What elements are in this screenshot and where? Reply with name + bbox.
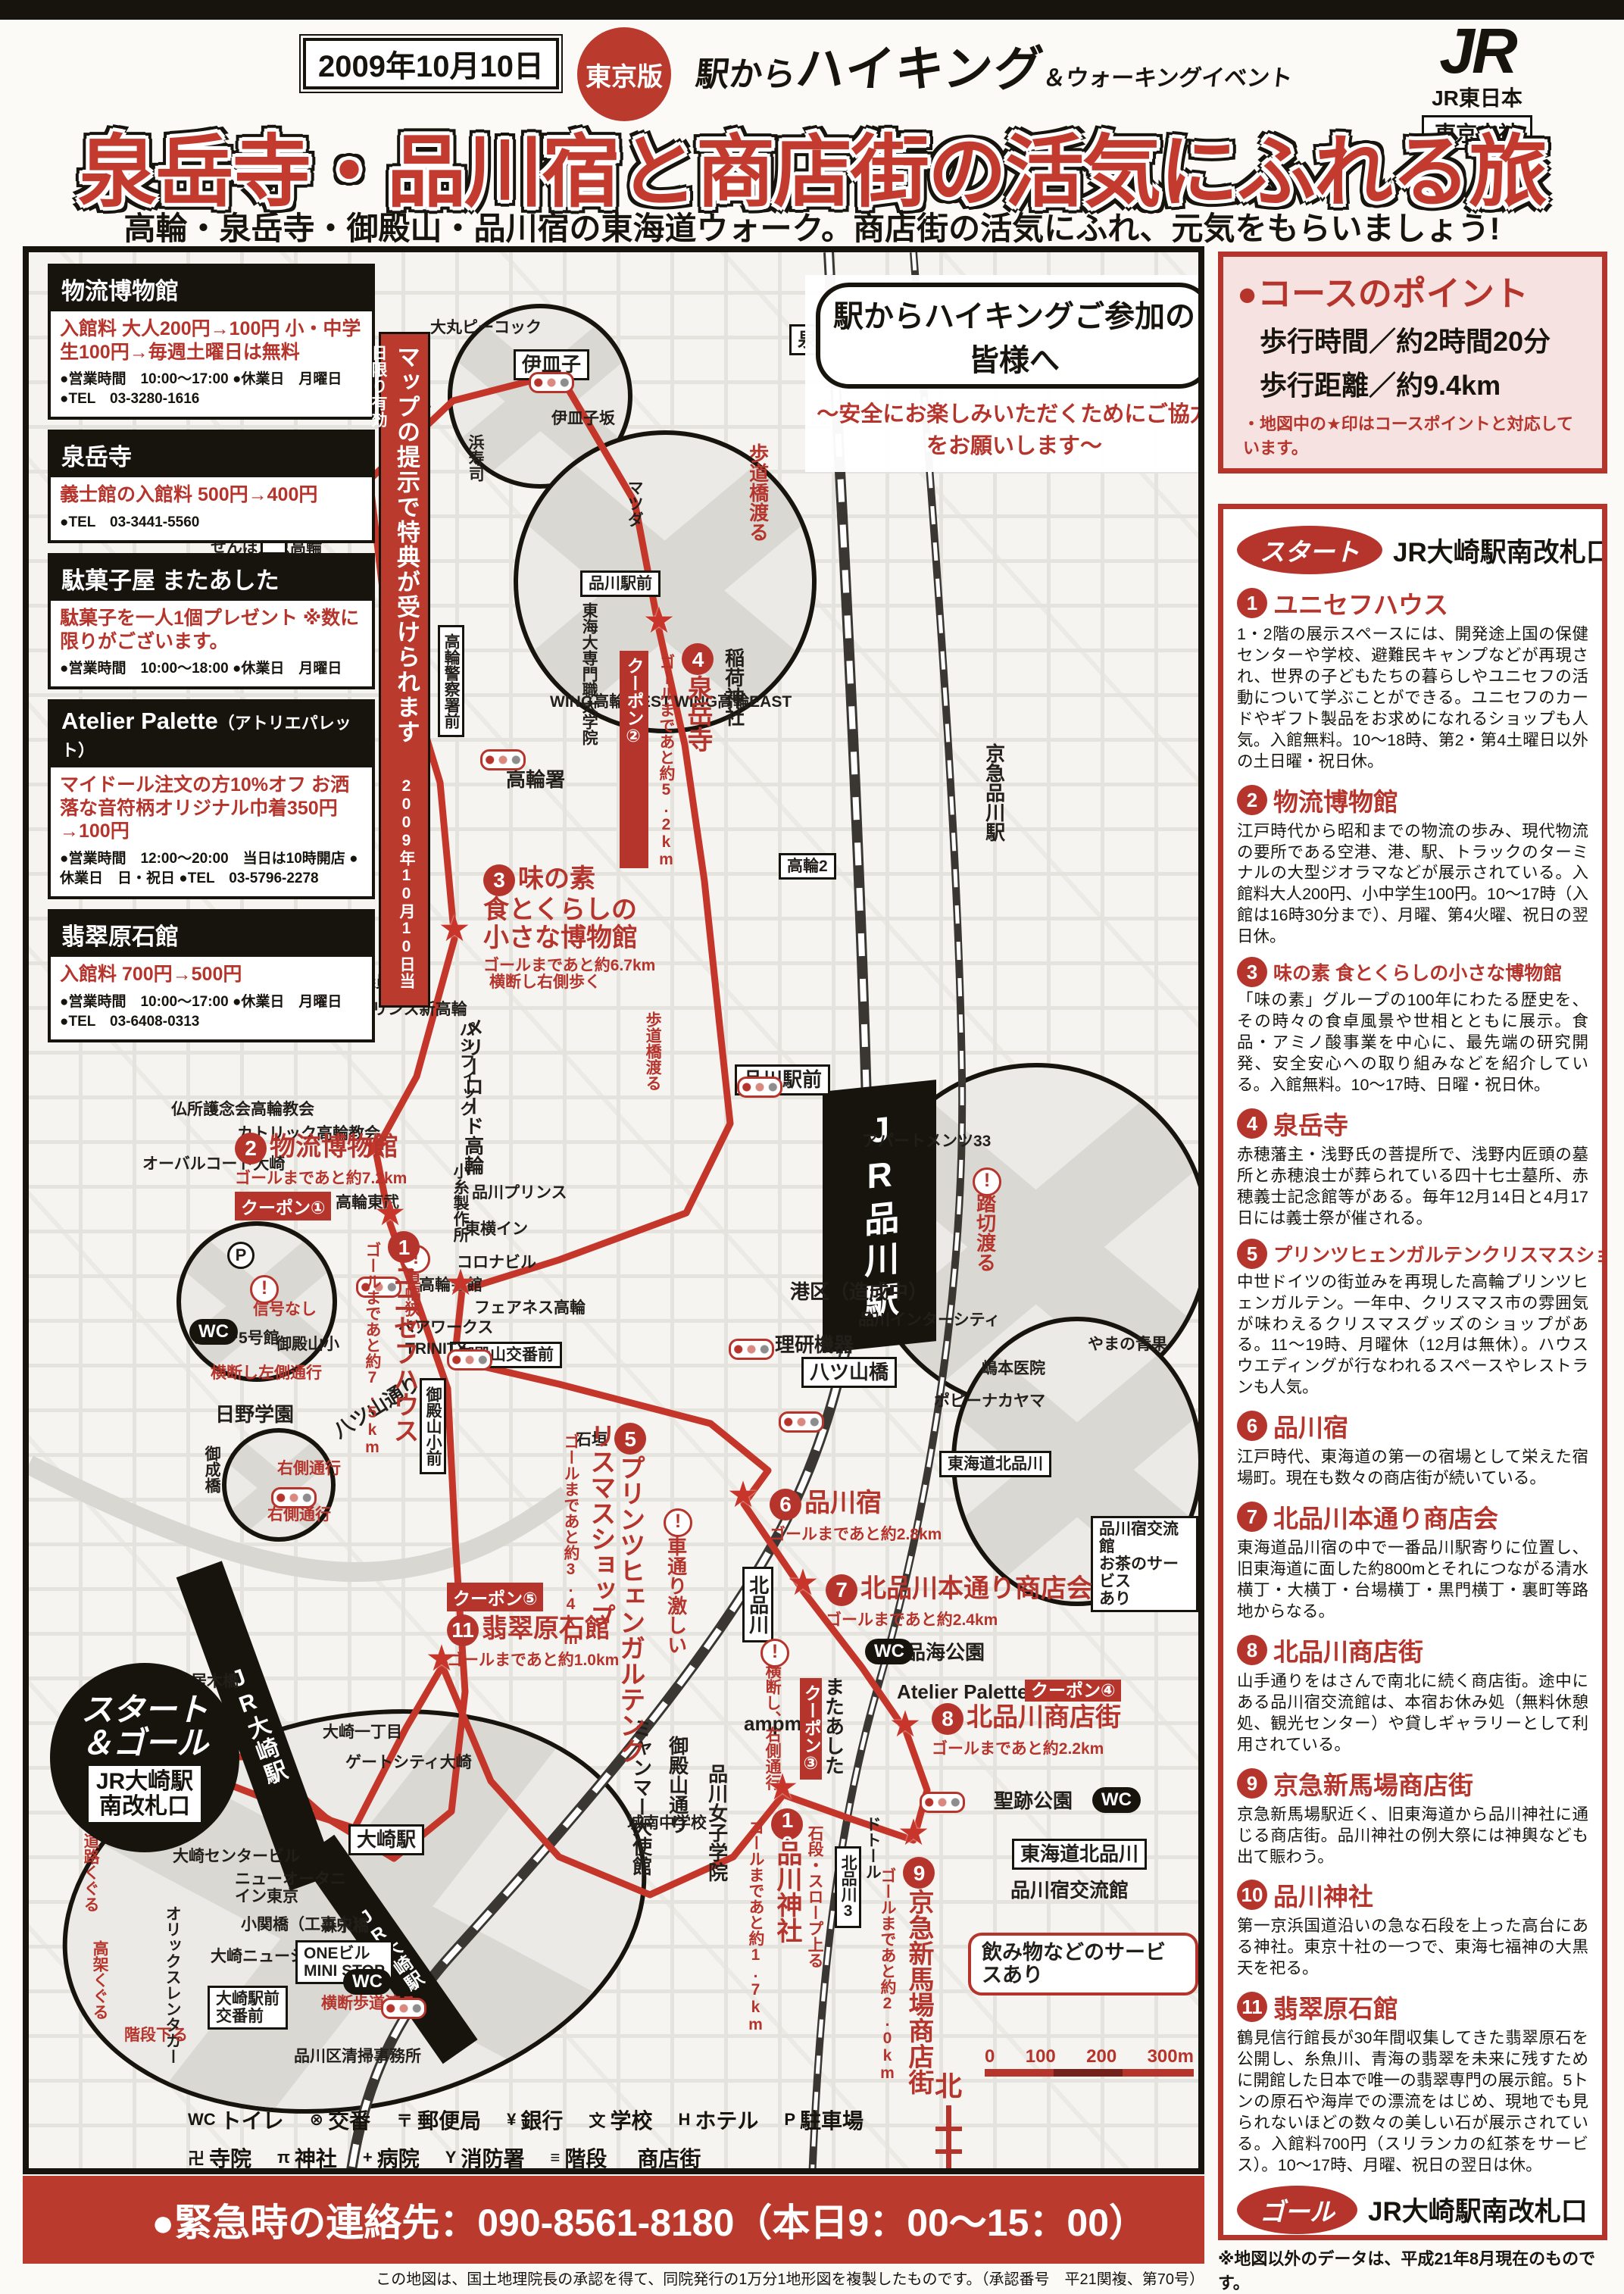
map-label: 右側通行 [277, 1460, 341, 1477]
distance-to-goal: ゴールまであと約2.8km [770, 1522, 942, 1545]
course-point-number: 10 [1237, 1880, 1267, 1910]
legend-item: ¥銀行 [507, 2105, 563, 2135]
legend-label: 階段 [564, 2142, 607, 2173]
info-box-body: 義士館の入館料 500円→400円 ●TEL 03-3441-5560 [51, 477, 372, 540]
map-label: 品海公園 [906, 1642, 985, 1664]
legend-item: WCトイレ [188, 2105, 284, 2135]
map-label: 北品川 [742, 1567, 773, 1642]
map-label [729, 1339, 774, 1360]
map-label: 港区（造成中） [790, 1281, 928, 1303]
course-point-entry: 2物流博物館 江戸時代から昭和までの物流の歩み、現代物流の要所である空港、港、駅… [1237, 782, 1588, 949]
course-point-name: プリンツヒェンガルテンクリスマスショップ [1273, 1240, 1607, 1267]
course-point-title: 北品川商店街 [967, 1703, 1121, 1732]
map-label: 石段・スロープ上る [806, 1825, 823, 1968]
legend-item: Hホテル [678, 2105, 758, 2135]
info-box: 物流博物館 入館料 大人200円→100円 小・中学生100円→毎週土曜日は無料… [48, 264, 375, 420]
course-point-label: 4泉岳寺 ゴールまであと約5.2km クーポン② [620, 643, 717, 868]
legend-item: 商店街 [632, 2142, 701, 2173]
course-point-number: 3 [483, 864, 515, 896]
legend-label: 商店街 [637, 2142, 701, 2173]
course-point-number: 5 [1237, 1239, 1267, 1269]
course-point-heading: 10品川神社 [771, 1808, 806, 2033]
north-label: 北 [935, 2064, 962, 2104]
course-point-number: 2 [235, 1133, 267, 1164]
course-point-name: 品川神社 [1273, 1877, 1373, 1913]
info-box: 泉岳寺 義士館の入館料 500円→400円 ●TEL 03-3441-5560 [48, 430, 375, 543]
course-points-title: ●コースのポイント [1237, 266, 1588, 315]
course-point-entry: 5プリンツヒェンガルテンクリスマスショップ 中世ドイツの街並みを再現した高輪プリ… [1237, 1239, 1588, 1399]
map-legend: WCトイレ⊗交番〒郵便局¥銀行文学校HホテルP駐車場 卍寺院π神社+病院Y消防署… [188, 2105, 1195, 2174]
course-star-marker: ★ [726, 1474, 759, 1516]
course-points-box: ●コースのポイント 歩行時間／約2時間20分歩行距離／約9.4km ・地図中の★… [1218, 252, 1607, 473]
legend-row1: WCトイレ⊗交番〒郵便局¥銀行文学校HホテルP駐車場 [188, 2105, 1195, 2135]
legend-icon: 卍 [188, 2146, 205, 2170]
facility-details: ●営業時間 10:00〜18:00 ●休業日 月曜日 [60, 659, 363, 679]
legend-label: 寺院 [209, 2142, 251, 2173]
course-point-name: 泉岳寺 [1273, 1105, 1348, 1142]
course-point-heading: 3味の素 食とくらしの 小さな博物館 [483, 864, 638, 952]
course-point-description: 京急新馬場駅近く、旧東海道から品川神社に通じる商店街。品川神社の例大祭には神輿な… [1237, 1805, 1588, 1868]
course-point-number: 7 [1237, 1502, 1267, 1532]
map-label: 東海道北品川 [939, 1451, 1051, 1477]
course-point-number: 11 [447, 1614, 479, 1646]
legend-label: 郵便局 [417, 2105, 481, 2135]
facility-details: ●営業時間 10:00〜17:00 ●休業日 月曜日 ●TEL 03-3280-… [60, 370, 363, 409]
map-label: 横断し右側歩く [489, 974, 601, 991]
course-point-name: 品川宿 [1273, 1408, 1348, 1444]
course-point-entry: 3味の素 食とくらしの小さな博物館 「味の素」グループの100年にわたる歴史を、… [1237, 957, 1588, 1096]
course-point-description: 第一京浜国道沿いの急な石段を上った高台にある神社。東京十社の一つで、東海七福神の… [1237, 1916, 1588, 1980]
course-point-label: 1ユニセフハウス ゴールまであと約7.5km [361, 1231, 423, 1456]
discount-highlight: 義士館の入館料 500円→400円 [60, 483, 363, 507]
course-point-description: 東海道品川宿の中で一番品川駅寄りに位置し、旧東海道に面した約800mとそれにつな… [1237, 1538, 1588, 1623]
map-label: 東海大専門職大学院 [580, 602, 598, 745]
map-label: 品川区清掃事務所 [294, 2048, 421, 2065]
course-point-number: 7 [826, 1574, 857, 1606]
goal-row: ゴール JR大崎駅南改札口 [1237, 2186, 1588, 2234]
legend-row2: 卍寺院π神社+病院Y消防署≡階段商店街 [188, 2142, 1195, 2173]
map-label: 歩道橋渡る [747, 443, 769, 542]
legend-icon: 文 [589, 2108, 605, 2132]
map-label: 大丸ピーコック [430, 319, 542, 336]
course-point-title: 翡翠原石館 [482, 1614, 611, 1643]
course-point-entry: 7北品川本通り商店会 東海道品川宿の中で一番品川駅寄りに位置し、旧東海道に面した… [1237, 1499, 1588, 1623]
legend-item: Y消防署 [445, 2142, 525, 2173]
map-label: 御殿山小前 [420, 1378, 446, 1474]
info-box-title: 駄菓子屋 またあした [51, 556, 372, 601]
notice-title: 駅からハイキングご参加の皆様へ [816, 283, 1204, 389]
map-label: WC [1092, 1787, 1141, 1813]
start-goal-bubble: スタート ＆ゴール JR大崎駅南改札口 [50, 1663, 239, 1852]
legend-label: 駐車場 [800, 2105, 864, 2135]
course-point-number: 6 [1237, 1411, 1267, 1441]
course-point-number: 8 [932, 1703, 963, 1735]
map-label [381, 1998, 426, 2019]
map-label: やまの青果 [1088, 1336, 1167, 1353]
course-star-marker: ★ [642, 599, 675, 642]
course-points-list: 1ユニセフハウス 1・2階の展示スペースには、開発途上国の保健センターや学校、避… [1237, 585, 1588, 2177]
emergency-contact: ●緊急時の連絡先：090-8561-8180（本日9：00〜15：00） [151, 2192, 1147, 2247]
map-label: ! [973, 1167, 1001, 1196]
course-point-name: 北品川商店街 [1273, 1632, 1423, 1668]
course-point-heading: 11翡翠原石館 [447, 1614, 611, 1646]
info-box-body: 入館料 700円→500円 ●営業時間 10:00〜17:00 ●休業日 月曜日… [51, 957, 372, 1039]
distance-to-goal: ゴールまであと約1.0km [447, 1648, 619, 1670]
legend-icon: ≡ [550, 2148, 560, 2167]
course-point-description: 中世ドイツの街並みを再現した高輪プリンツヒェンガルテン。一年中、クリスマス市の雰… [1237, 1272, 1588, 1399]
map-label: 品川女子学院 [706, 1764, 728, 1882]
map-label: 東海道北品川 [1012, 1839, 1147, 1870]
info-box: 駄菓子屋 またあした 駄菓子を一人1個プレゼント ※数に限りがございます。 ●営… [48, 553, 375, 689]
map-label: 飲み物などのサービスあり [968, 1933, 1198, 1996]
facility-details: ●TEL 03-3441-5560 [60, 513, 363, 533]
map-label: Atelier Palette [897, 1681, 1028, 1703]
event-logo-suffix: ＆ウォーキングイベント [1042, 66, 1294, 91]
facility-details: ●営業時間 12:00〜20:00 当日は10時開店 ●休業日 日・祝日 ●TE… [60, 849, 363, 889]
map-label [920, 1792, 965, 1813]
course-point-label: 11翡翠原石館 ゴールまであと約1.0km クーポン⑤ [447, 1583, 619, 1670]
scale-tick: 0 [985, 2046, 995, 2067]
legend-label: 学校 [610, 2105, 652, 2135]
distance-to-goal: ゴールまであと約2.2km [932, 1736, 1104, 1759]
legend-icon: ¥ [507, 2110, 516, 2130]
map-label: 品川駅前 [580, 570, 661, 597]
map-label: マツダ [626, 480, 643, 527]
map-label [480, 749, 526, 770]
map-label: 高架くぐる [91, 1940, 108, 2020]
course-points-note: ・地図中の★印はコースポイントと対応しています。 [1243, 411, 1588, 459]
legend-icon: Y [445, 2148, 457, 2167]
course-point-heading: 4泉岳寺 [682, 643, 717, 868]
course-point-number: 8 [1237, 1635, 1267, 1665]
map-label: 車通り激しい [665, 1536, 687, 1655]
course-point-name: 味の素 食とくらしの小さな博物館 [1273, 958, 1562, 986]
course-star-marker: ★ [444, 1261, 476, 1304]
north-arrow [946, 2105, 951, 2174]
legend-icon: P [784, 2110, 795, 2130]
map-label: 仏所護念会高輪教会 [171, 1101, 314, 1118]
map-label: 高輪署 [506, 769, 565, 791]
course-description-panel: スタート JR大崎駅南改札口 1ユニセフハウス 1・2階の展示スペースには、開発… [1218, 504, 1607, 2240]
data-currency-note: ※地図以外のデータは、平成21年8月現在のものです。 [1218, 2246, 1607, 2294]
map-label: 歩道橋渡る [644, 1011, 661, 1091]
distance-to-goal: ゴールまであと約6.7km [483, 953, 655, 976]
course-point-number: 9 [1237, 1768, 1267, 1799]
course-point-title: 北品川本通り商店会 [860, 1574, 1092, 1603]
event-date: 2009年10月10日 [303, 38, 559, 89]
legend-item: π神社 [277, 2142, 337, 2173]
course-point-number: 1 [1237, 588, 1267, 618]
map-label: 大崎一丁目 [323, 1724, 402, 1741]
legend-item: +病院 [363, 2142, 420, 2173]
scale-tick: 100 [1026, 2046, 1056, 2067]
info-box-body: 入館料 大人200円→100円 小・中学生100円→毎週土曜日は無料 ●営業時間… [51, 311, 372, 417]
course-point-description: 江戸時代、東海道の第一の宿場として栄えた宿場町。現在も数々の商店街が続いている。 [1237, 1447, 1588, 1489]
distance-to-goal: ゴールまであと約2.0km [876, 1867, 898, 2095]
map-attribution: この地図は、国土地理院長の承認を得て、同院発行の1万分1地形図を複製したものです… [23, 2267, 1204, 2289]
course-point-description: 江戸時代から昭和までの物流の歩み、現代物流の要所である空港、港、駅、トラックのタ… [1237, 821, 1588, 949]
map-scale-bar: 0100200300m [985, 2046, 1194, 2077]
course-point-title: 泉岳寺 [683, 675, 712, 752]
map-label [779, 1411, 824, 1433]
course-point-title: 物流博物館 [270, 1133, 398, 1161]
map-label: 御成橋 [203, 1445, 220, 1493]
coupon-badge: クーポン⑤ [447, 1583, 543, 1611]
course-point-entry: 4泉岳寺 赤穂藩主・浅野氏の菩提所で、浅野内匠頭の墓所と赤穂浪士が葬られている四… [1237, 1105, 1588, 1230]
course-point-entry: 8北品川商店街 山手通りをはさんで南北に続く商店街。途中にある品川宿交流館は、本… [1237, 1632, 1588, 1756]
course-point-label: 2物流博物館 ゴールまであと約7.2km クーポン① [235, 1133, 407, 1220]
course-star-marker: ★ [766, 1766, 798, 1808]
legend-label: 神社 [295, 2142, 337, 2173]
map-label: 御殿山小 [276, 1336, 339, 1353]
map-label: 高輪警察署前 [438, 625, 464, 737]
legend-item: P駐車場 [784, 2105, 864, 2135]
course-point-title: 品川神社 [773, 1840, 801, 1943]
scale-bar [985, 2069, 1194, 2077]
discount-highlight: マイドール注文の方10%オフ お洒落な音符柄オリジナル巾着350円→100円 [60, 774, 363, 843]
emergency-bar: ●緊急時の連絡先：090-8561-8180（本日9：00〜15：00） [23, 2176, 1204, 2264]
legend-icon: H [678, 2110, 690, 2130]
map-label: 森永橋 [321, 1917, 369, 1935]
legend-item: ⊗交番 [310, 2105, 370, 2135]
course-point-name: 京急新馬場商店街 [1273, 1765, 1473, 1802]
legend-icon: ⊗ [310, 2110, 323, 2130]
legend-item: ≡階段 [550, 2142, 607, 2173]
map-label [447, 1349, 492, 1370]
coupon-badge: クーポン① [235, 1192, 331, 1220]
map-label: 大崎駅 [348, 1824, 424, 1855]
course-point-label: 9京急新馬場商店街 ゴールまであと約2.0km [876, 1857, 938, 2095]
course-point-title: 京急新馬場商店街 [904, 1889, 933, 2095]
distance-to-goal: ゴールまであと約5.2km [654, 654, 677, 868]
map-label: 階段下る [124, 2027, 188, 2044]
course-star-marker: ★ [889, 1703, 921, 1746]
map-label: クーポン④ [1025, 1680, 1121, 1702]
map-label: またあした [823, 1677, 845, 1775]
course-point-name: 翡翠原石館 [1273, 1989, 1398, 2025]
map-label: 日野学園 [215, 1404, 294, 1426]
map-label: ! [760, 1639, 789, 1667]
map-label: 高輪2 [779, 853, 836, 880]
map-label: 稲荷神社 [723, 648, 745, 727]
map-label: 大崎駅前 交番前 [208, 1986, 288, 2030]
map-label: 品川インターシティ [858, 1311, 1000, 1329]
map-label: ! [250, 1275, 279, 1304]
course-point-heading: 9京急新馬場商店街 [903, 1857, 938, 2095]
map-label: ! [664, 1508, 692, 1537]
course-point-entry: 9京急新馬場商店街 京急新馬場駅近く、旧東海道から品川神社に通じる商店街。品川神… [1237, 1765, 1588, 1868]
map-label: 伊皿子坂 [551, 410, 615, 427]
info-box-body: 駄菓子を一人1個プレゼント ※数に限りがございます。 ●営業時間 10:00〜1… [51, 601, 372, 686]
distance-to-goal: ゴールまであと約2.4km [826, 1608, 998, 1630]
event-logo: 駅からハイキング＆ウォーキングイベント [693, 30, 1298, 100]
start-row: スタート JR大崎駅南改札口 [1237, 526, 1588, 574]
map-label: 東横イン [464, 1220, 528, 1238]
course-point-label: 7北品川本通り商店会 ゴールまであと約2.4km [826, 1574, 1092, 1630]
map-label: WC [865, 1639, 913, 1664]
map-label: ポピーナカヤマ [934, 1392, 1045, 1410]
event-logo-main: ハイキング [794, 42, 1047, 96]
map-label: 踏切渡る [974, 1193, 996, 1272]
coupon-badge: クーポン② [620, 651, 648, 868]
course-point-number: 3 [1237, 957, 1267, 987]
discount-highlight: 入館料 700円→500円 [60, 963, 363, 986]
map-label: 右側通行 [267, 1506, 331, 1524]
course-point-entry: 6品川宿 江戸時代、東海道の第一の宿場として栄えた宿場町。現在も数々の商店街が続… [1237, 1408, 1588, 1489]
legend-label: トイレ [220, 2105, 284, 2135]
discount-highlight: 駄菓子を一人1個プレゼント ※数に限りがございます。 [60, 607, 363, 653]
facility-details: ●営業時間 10:00〜17:00 ●休業日 月曜日 ●TEL 03-6408-… [60, 992, 363, 1032]
course-point-label: 8北品川商店街 ゴールまであと約2.2km [932, 1703, 1121, 1759]
course-point-name: 物流博物館 [1273, 782, 1398, 818]
info-box-title: 物流博物館 [51, 267, 372, 311]
course-point-label: 10品川神社 ゴールまであと約1.7km [744, 1808, 806, 2033]
start-station: JR大崎駅南改札口 [1393, 531, 1607, 570]
participant-notice: 駅からハイキングご参加の皆様へ 〜安全にお楽しみいただくためにご協力をお願いしま… [805, 275, 1204, 472]
course-point-entry: 11翡翠原石館 鶴見信行館長が30年間収集してきた翡翠原石を公開し、糸魚川、青海… [1237, 1989, 1588, 2177]
info-box: 翡翠原石館 入館料 700円→500円 ●営業時間 10:00〜17:00 ●休… [48, 909, 375, 1042]
map-label [271, 1487, 317, 1508]
course-point-description: 赤穂藩主・浅野氏の菩提所で、浅野内匠頭の墓所と赤穂浪士が葬られている四十七士墓所… [1237, 1145, 1588, 1230]
map-label: ニューオータニ イン東京 [235, 1871, 346, 1905]
course-point-name: ユニセフハウス [1273, 585, 1448, 621]
course-point-number: 4 [682, 643, 714, 675]
page-top-border [0, 0, 1624, 20]
distance-to-goal: ゴールまであと約7.2km [235, 1166, 407, 1189]
notice-subtitle: 〜安全にお楽しみいただくためにご協力をお願いします〜 [816, 396, 1204, 460]
legend-icon: π [277, 2148, 290, 2167]
legend-label: 交番 [328, 2105, 370, 2135]
course-point-name: 北品川本通り商店会 [1273, 1499, 1498, 1535]
course-star-marker: ★ [786, 1561, 819, 1604]
scale-tick: 200 [1086, 2046, 1116, 2067]
jr-logo: JR [1394, 23, 1560, 80]
course-point-number: 2 [1237, 785, 1267, 815]
info-box-title: 翡翠原石館 [51, 912, 372, 957]
course-point-title: ユニセフハウス [389, 1263, 418, 1443]
course-point-label: 3味の素 食とくらしの 小さな博物館 ゴールまであと約6.7km [483, 864, 655, 976]
map-label: 北品川3 [835, 1846, 861, 1928]
scale-tick: 300m [1148, 2046, 1194, 2067]
info-box-body: マイドール注文の方10%オフ お洒落な音符柄オリジナル巾着350円→100円 ●… [51, 767, 372, 896]
map-label: ゲートシティ大崎 [345, 1754, 472, 1771]
start-badge: スタート [1237, 526, 1382, 574]
course-point-heading: 7北品川本通り商店会 [826, 1574, 1092, 1606]
info-box-title: Atelier Palette（アトリエパレット） [51, 702, 372, 767]
legend-label: 消防署 [461, 2142, 524, 2173]
start-goal-line1: スタート [81, 1693, 208, 1727]
discount-highlight: 入館料 大人200円→100円 小・中学生100円→毎週土曜日は無料 [60, 317, 363, 364]
course-point-number: 1 [388, 1231, 420, 1263]
map-label [529, 372, 574, 393]
course-point-number: 6 [770, 1489, 801, 1520]
course-point-number: 4 [1237, 1108, 1267, 1139]
map-label: 品川宿交流館 お茶のサービス あり [1091, 1516, 1198, 1612]
map-label: パシフィック [458, 1021, 475, 1117]
map-label: クーポン③ [800, 1678, 822, 1780]
map-label: 道路くぐる [82, 1833, 99, 1912]
event-logo-prefix: 駅から [694, 56, 798, 93]
map-label: 嶋本医院 [982, 1360, 1045, 1377]
goal-badge: ゴール [1237, 2186, 1357, 2234]
course-point-heading: 6品川宿 [770, 1489, 882, 1520]
legend-item: 文学校 [589, 2105, 652, 2135]
north-indicator: 北 [935, 2064, 962, 2174]
map-label: 品川プリンス [472, 1184, 567, 1202]
legend-icon: 〒 [396, 2108, 413, 2132]
course-point-heading: 2物流博物館 [235, 1133, 398, 1164]
legend-item: 卍寺院 [188, 2142, 251, 2173]
course-point-description: 山手通りをはさんで南北に続く商店街。途中にある品川宿交流館は、本宿お休み処（無料… [1237, 1671, 1588, 1756]
course-point-description: 1・2階の展示スペースには、開発途上国の保健センターや学校、避難民キャンプなどが… [1237, 624, 1588, 773]
map-label: 八ツ山橋 [801, 1357, 897, 1388]
map-label: 御殿山通り [667, 1736, 689, 1834]
course-point-entry: 1ユニセフハウス 1・2階の展示スペースには、開発途上国の保健センターや学校、避… [1237, 585, 1588, 773]
legend-label: 病院 [377, 2142, 420, 2173]
course-point-heading: 1ユニセフハウス [388, 1231, 423, 1456]
map-label: WC [189, 1319, 238, 1345]
goal-station: JR大崎駅南改札口 [1368, 2190, 1588, 2229]
distance-to-goal: ゴールまであと約1.7km [744, 1819, 767, 2033]
course-point-description: 「味の素」グループの100年にわたる歴史を、その時々の食卓風景や世相とともに展示… [1237, 990, 1588, 1096]
map-label: P [227, 1242, 255, 1269]
map-label: 京急品川駅 [983, 743, 1005, 842]
map-label: 浜寿司 [467, 434, 484, 482]
map-label: WC [343, 1969, 392, 1995]
map-label [737, 1077, 782, 1098]
course-stat-line: 歩行距離／約9.4km [1260, 364, 1588, 403]
start-goal-station: JR大崎駅南改札口 [89, 1766, 201, 1822]
course-point-number: 10 [771, 1808, 803, 1840]
course-point-entry: 10品川神社 第一京浜国道沿いの急な石段を上った高台にある神社。東京十社の一つで… [1237, 1877, 1588, 1980]
map-label: 大崎センタービル [173, 1848, 300, 1865]
course-point-number: 5 [614, 1423, 646, 1455]
info-box: Atelier Palette（アトリエパレット） マイドール注文の方10%オフ… [48, 699, 375, 899]
map-benefit-strip: マップの提示で特典が受けられます 2009年10月10日当日限り有効 [379, 332, 430, 1008]
discount-info-boxes: 物流博物館 入館料 大人200円→100円 小・中学生100円→毎週土曜日は無料… [48, 264, 375, 1052]
course-map: 大丸ピーコック伊皿子茶乃樹伊皿子坂浜寿司東海大中・高せんぽ東京高輪高輪3泉岳寺a… [23, 246, 1204, 2174]
map-label: 聖跡公園 [994, 1790, 1073, 1812]
course-point-label: 6品川宿 ゴールまであと約2.8km [770, 1489, 942, 1545]
course-stat-line: 歩行時間／約2時間20分 [1260, 320, 1588, 359]
course-point-title: 品川宿 [804, 1489, 882, 1517]
legend-icon: + [363, 2148, 373, 2167]
course-point-description: 鶴見信行館長が30年間収集してきた翡翠原石を公開し、糸魚川、青海の翡翠を未来に残… [1237, 2028, 1588, 2177]
course-point-number: 9 [903, 1857, 935, 1889]
info-box-title: 泉岳寺 [51, 433, 372, 477]
legend-label: 銀行 [520, 2105, 563, 2135]
course-star-marker: ★ [897, 1811, 929, 1854]
legend-item: 〒郵便局 [396, 2105, 481, 2135]
course-point-number: 11 [1237, 1992, 1267, 2022]
map-label: 理研機器 [775, 1334, 854, 1356]
map-label: 品川宿交流館 [1010, 1880, 1129, 1902]
legend-icon: WC [188, 2110, 216, 2130]
distance-to-goal: ゴールまであと約7.5km [361, 1242, 383, 1456]
page-subtitle: 高輪・泉岳寺・御殿山・品川宿の東海道ウォーク。商店街の活気にふれ、元気をもらいま… [0, 203, 1624, 249]
benefit-line1: マップの提示で特典が受けられます [393, 345, 420, 745]
map-label: 横断し左側通行 [211, 1364, 322, 1382]
course-star-marker: ★ [438, 908, 470, 950]
map-label: アパートメンツ33 [862, 1133, 991, 1150]
legend-label: ホテル [695, 2105, 758, 2135]
start-goal-line2: ＆ゴール [81, 1727, 208, 1760]
map-label: フェアネス高輪 [474, 1299, 586, 1317]
course-point-heading: 8北品川商店街 [932, 1703, 1121, 1735]
